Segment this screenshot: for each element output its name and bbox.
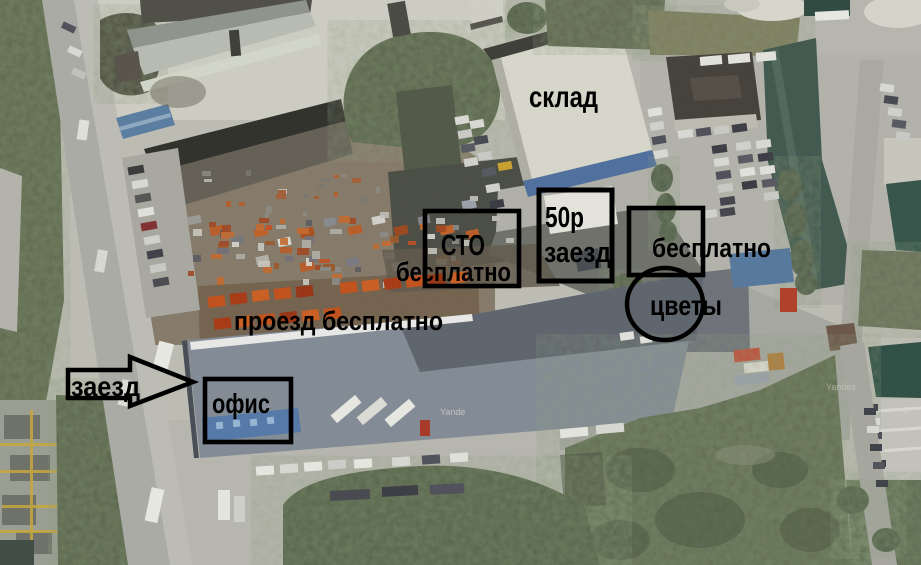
svg-text:Yandex: Yandex: [826, 382, 856, 392]
svg-text:Ya: Ya: [898, 406, 908, 416]
svg-text:бесплатно: бесплатно: [396, 257, 511, 287]
svg-text:бесплатно: бесплатно: [652, 233, 771, 263]
svg-text:заезд: заезд: [544, 237, 611, 269]
svg-text:заезд: заезд: [71, 371, 140, 402]
svg-text:Yande: Yande: [440, 407, 465, 417]
svg-text:офис: офис: [212, 388, 270, 419]
svg-text:цветы: цветы: [650, 290, 722, 321]
svg-text:50р: 50р: [545, 202, 584, 234]
svg-text:склад: склад: [529, 81, 598, 114]
svg-text:проезд бесплатно: проезд бесплатно: [234, 306, 443, 336]
